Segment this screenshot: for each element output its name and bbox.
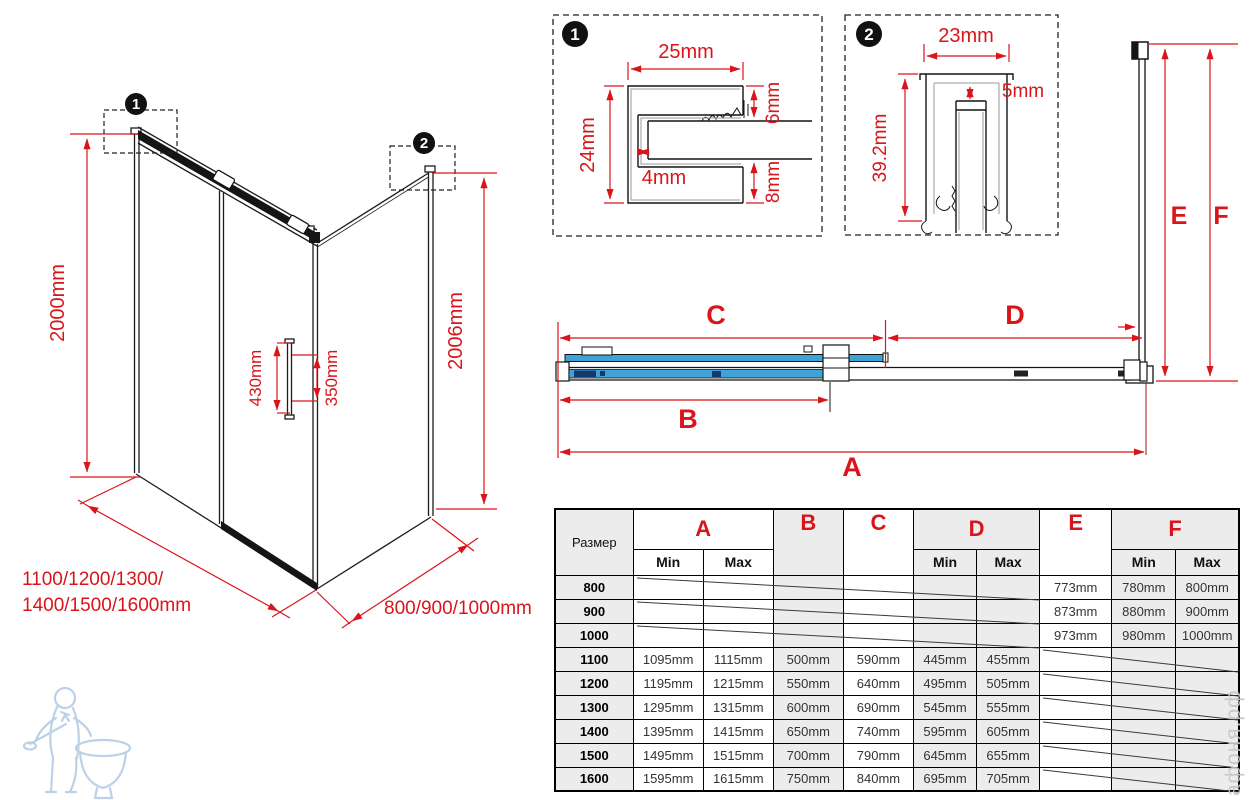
value-cell: 790mm bbox=[843, 743, 913, 767]
handle-430-label: 430mm bbox=[246, 350, 265, 407]
value-cell bbox=[633, 623, 703, 647]
detail-2: 2 23mm 5mm 39.2mm bbox=[845, 15, 1058, 235]
column-header-E: E bbox=[1040, 509, 1112, 575]
value-cell bbox=[1040, 671, 1112, 695]
value-cell: 1495mm bbox=[633, 743, 703, 767]
value-cell bbox=[913, 575, 976, 599]
value-cell: 500mm bbox=[773, 647, 843, 671]
detail-2-glass bbox=[956, 101, 986, 233]
value-cell bbox=[1112, 695, 1176, 719]
value-cell: 650mm bbox=[773, 719, 843, 743]
table-row: 14001395mm1415mm650mm740mm595mm605mm bbox=[555, 719, 1239, 743]
size-cell: 900 bbox=[555, 599, 633, 623]
front-widths-line2: 1400/1500/1600mm bbox=[22, 595, 191, 616]
detail-1-25-label: 25mm bbox=[658, 41, 714, 63]
value-cell: 495mm bbox=[913, 671, 976, 695]
detail-1-glass bbox=[648, 121, 812, 159]
callout-1-number: 1 bbox=[132, 96, 140, 113]
value-cell: 773mm bbox=[1040, 575, 1112, 599]
value-cell bbox=[1112, 743, 1176, 767]
value-cell bbox=[1112, 719, 1176, 743]
value-cell: 1615mm bbox=[703, 767, 773, 791]
A-min-header: Min bbox=[633, 549, 703, 575]
value-cell bbox=[703, 599, 773, 623]
label-D: D bbox=[1005, 300, 1025, 330]
table-row: 1000973mm980mm1000mm bbox=[555, 623, 1239, 647]
size-cell: 1500 bbox=[555, 743, 633, 767]
value-cell bbox=[1112, 647, 1176, 671]
isometric-view: 1 2 bbox=[22, 93, 532, 628]
value-cell: 555mm bbox=[977, 695, 1040, 719]
value-cell bbox=[913, 623, 976, 647]
F-max-header: Max bbox=[1176, 549, 1239, 575]
value-cell bbox=[773, 623, 843, 647]
value-cell: 1415mm bbox=[703, 719, 773, 743]
roller-block bbox=[212, 170, 235, 190]
value-cell bbox=[1176, 743, 1239, 767]
value-cell bbox=[773, 575, 843, 599]
side-elevation: E F bbox=[1118, 42, 1238, 383]
value-cell bbox=[977, 623, 1040, 647]
value-cell: 640mm bbox=[843, 671, 913, 695]
door-bottom-rail bbox=[221, 521, 317, 591]
value-cell: 980mm bbox=[1112, 623, 1176, 647]
size-cell: 1300 bbox=[555, 695, 633, 719]
value-cell: 800mm bbox=[1176, 575, 1239, 599]
side-bottom-edge bbox=[317, 517, 431, 589]
callout-2-number: 2 bbox=[420, 135, 428, 152]
detail-2-23-label: 23mm bbox=[938, 25, 994, 47]
door-stopper bbox=[582, 347, 612, 355]
value-cell: 840mm bbox=[843, 767, 913, 791]
detail-1: 1 25mm bbox=[553, 15, 822, 236]
label-F: F bbox=[1213, 202, 1228, 230]
value-cell: 705mm bbox=[977, 767, 1040, 791]
value-cell: 1595mm bbox=[633, 767, 703, 791]
value-cell: 973mm bbox=[1040, 623, 1112, 647]
value-cell: 740mm bbox=[843, 719, 913, 743]
table-row: 16001595mm1615mm750mm840mm695mm705mm bbox=[555, 767, 1239, 791]
technical-drawing-page: 1 2 bbox=[0, 0, 1250, 800]
value-cell: 590mm bbox=[843, 647, 913, 671]
table-row: 900873mm880mm900mm bbox=[555, 599, 1239, 623]
value-cell bbox=[1040, 695, 1112, 719]
value-cell: 880mm bbox=[1112, 599, 1176, 623]
value-cell bbox=[1040, 767, 1112, 791]
table-row: 13001295mm1315mm600mm690mm545mm555mm bbox=[555, 695, 1239, 719]
front-widths-line1: 1100/1200/1300/ bbox=[22, 569, 164, 590]
value-cell bbox=[977, 599, 1040, 623]
table-row: 800773mm780mm800mm bbox=[555, 575, 1239, 599]
value-cell bbox=[843, 575, 913, 599]
detail-1-number: 1 bbox=[570, 25, 579, 44]
D-min-header: Min bbox=[913, 549, 976, 575]
size-cell: 1400 bbox=[555, 719, 633, 743]
detail-2-39-label: 39.2mm bbox=[870, 114, 891, 183]
size-cell: 1200 bbox=[555, 671, 633, 695]
value-cell bbox=[1176, 767, 1239, 791]
plan-section: C D B A bbox=[556, 300, 1147, 482]
value-cell: 1195mm bbox=[633, 671, 703, 695]
value-cell bbox=[633, 575, 703, 599]
value-cell bbox=[703, 623, 773, 647]
value-cell: 1515mm bbox=[703, 743, 773, 767]
size-column-header: Размер bbox=[555, 509, 633, 575]
detail-1-4-label: 4mm bbox=[642, 167, 686, 189]
value-cell: 445mm bbox=[913, 647, 976, 671]
value-cell bbox=[773, 599, 843, 623]
label-E: E bbox=[1171, 202, 1188, 230]
value-cell bbox=[1176, 647, 1239, 671]
detail-2-number: 2 bbox=[864, 25, 873, 44]
value-cell: 1095mm bbox=[633, 647, 703, 671]
value-cell: 750mm bbox=[773, 767, 843, 791]
value-cell: 550mm bbox=[773, 671, 843, 695]
value-cell: 1000mm bbox=[1176, 623, 1239, 647]
corner-connector bbox=[309, 232, 320, 243]
value-cell: 873mm bbox=[1040, 599, 1112, 623]
size-cell: 800 bbox=[555, 575, 633, 599]
value-cell bbox=[1176, 719, 1239, 743]
corner-profile bbox=[1124, 360, 1140, 380]
column-header-B: B bbox=[773, 509, 843, 575]
callout-2: 2 bbox=[390, 132, 455, 190]
value-cell bbox=[1040, 647, 1112, 671]
label-B: B bbox=[678, 404, 698, 434]
column-header-C: C bbox=[843, 509, 913, 575]
table-row: 15001495mm1515mm700mm790mm645mm655mm bbox=[555, 743, 1239, 767]
value-cell: 595mm bbox=[913, 719, 976, 743]
height-2000-label: 2000mm bbox=[47, 264, 69, 342]
value-cell: 700mm bbox=[773, 743, 843, 767]
label-A: A bbox=[842, 452, 862, 482]
table-row: 11001095mm1115mm500mm590mm445mm455mm bbox=[555, 647, 1239, 671]
value-cell: 645mm bbox=[913, 743, 976, 767]
fixed-glass bbox=[569, 370, 828, 379]
F-min-header: Min bbox=[1112, 549, 1176, 575]
handle-350-label: 350mm bbox=[322, 350, 341, 407]
detail-2-5-label: 5mm bbox=[1002, 81, 1044, 102]
value-cell: 1115mm bbox=[703, 647, 773, 671]
roller-carriage bbox=[823, 345, 849, 381]
value-cell: 505mm bbox=[977, 671, 1040, 695]
value-cell bbox=[1176, 671, 1239, 695]
value-cell: 600mm bbox=[773, 695, 843, 719]
value-cell bbox=[703, 575, 773, 599]
value-cell bbox=[1112, 767, 1176, 791]
value-cell: 1395mm bbox=[633, 719, 703, 743]
detail-1-6-label: 6mm bbox=[763, 82, 784, 124]
label-C: C bbox=[706, 300, 726, 330]
value-cell: 605mm bbox=[977, 719, 1040, 743]
value-cell bbox=[1112, 671, 1176, 695]
detail-2-seal bbox=[936, 186, 998, 211]
value-cell: 1295mm bbox=[633, 695, 703, 719]
value-cell: 1215mm bbox=[703, 671, 773, 695]
size-cell: 1100 bbox=[555, 647, 633, 671]
header-row-letters: Размер A B C D E F bbox=[555, 509, 1239, 549]
A-max-header: Max bbox=[703, 549, 773, 575]
value-cell: 780mm bbox=[1112, 575, 1176, 599]
height-2006-label: 2006mm bbox=[445, 292, 467, 370]
D-max-header: Max bbox=[977, 549, 1040, 575]
size-cell: 1600 bbox=[555, 767, 633, 791]
value-cell: 655mm bbox=[977, 743, 1040, 767]
column-header-A: A bbox=[633, 509, 773, 549]
column-header-F: F bbox=[1112, 509, 1239, 549]
value-cell: 455mm bbox=[977, 647, 1040, 671]
value-cell bbox=[1040, 743, 1112, 767]
value-cell bbox=[843, 599, 913, 623]
size-cell: 1000 bbox=[555, 623, 633, 647]
value-cell bbox=[1040, 719, 1112, 743]
roller-block bbox=[286, 215, 309, 235]
size-table-container: Размер A B C D E F Min Max Min Max Min M… bbox=[554, 508, 1240, 792]
value-cell bbox=[843, 623, 913, 647]
detail-1-8-label: 8mm bbox=[763, 161, 784, 203]
size-table: Размер A B C D E F Min Max Min Max Min M… bbox=[554, 508, 1240, 792]
value-cell bbox=[977, 575, 1040, 599]
value-cell: 690mm bbox=[843, 695, 913, 719]
value-cell: 695mm bbox=[913, 767, 976, 791]
table-row: 12001195mm1215mm550mm640mm495mm505mm bbox=[555, 671, 1239, 695]
side-widths-label: 800/900/1000mm bbox=[384, 598, 532, 619]
value-cell: 1315mm bbox=[703, 695, 773, 719]
detail-1-24-label: 24mm bbox=[577, 117, 599, 173]
size-table-body: 800773mm780mm800mm900873mm880mm900mm1000… bbox=[555, 575, 1239, 791]
value-cell: 900mm bbox=[1176, 599, 1239, 623]
column-header-D: D bbox=[913, 509, 1039, 549]
side-panel-top-edge bbox=[318, 173, 429, 243]
value-cell bbox=[633, 599, 703, 623]
value-cell bbox=[1176, 695, 1239, 719]
value-cell bbox=[913, 599, 976, 623]
value-cell: 545mm bbox=[913, 695, 976, 719]
